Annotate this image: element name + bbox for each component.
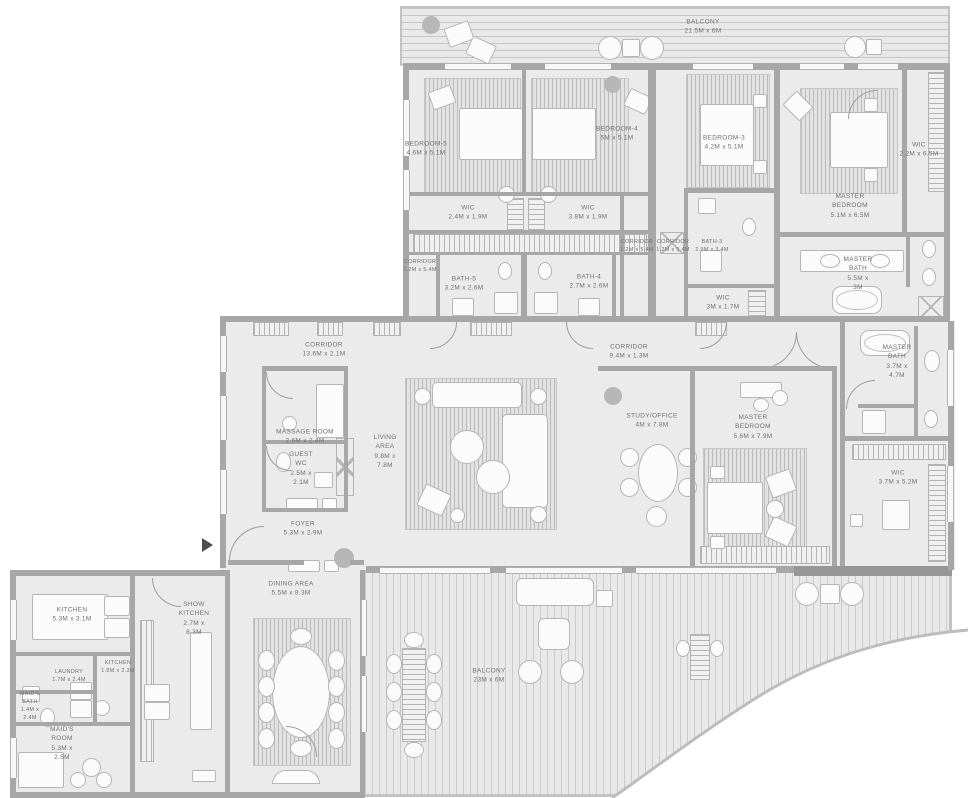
chair	[328, 728, 345, 749]
wic-island	[882, 500, 910, 530]
closet	[413, 234, 647, 254]
window	[800, 63, 844, 70]
room-label-show-kitchen: SHOW KITCHEN2.7M x 8.3M	[176, 600, 212, 638]
chair	[426, 710, 442, 730]
side-table	[766, 500, 784, 518]
room-label-bath-5: BATH-53.2M x 2.6M	[444, 275, 483, 294]
table	[866, 39, 882, 55]
sofa	[432, 382, 522, 408]
chair	[386, 654, 402, 674]
room-label-wic-bedroom-4: WIC3.8M x 1.9M	[568, 204, 607, 223]
table	[622, 39, 640, 57]
bidet	[922, 268, 936, 286]
closet	[928, 464, 946, 562]
wall	[598, 366, 837, 371]
room-label-foyer: FOYER5.3M x 2.9M	[283, 520, 322, 539]
room-label-bedroom-4: BEDROOM-45M x 5.1M	[596, 125, 638, 144]
wall	[612, 252, 616, 316]
chair	[795, 582, 819, 606]
window	[693, 63, 753, 70]
closet	[253, 322, 289, 336]
window	[636, 567, 776, 574]
room-label-kitchen: KITCHEN5.3M x 3.1M	[52, 606, 91, 625]
sink	[924, 350, 940, 372]
wall	[684, 188, 774, 193]
deck-edge	[948, 6, 950, 66]
room-label-master-bedroom-upper: MASTER BEDROOM5.1M x 6.5M	[826, 192, 874, 220]
planter	[604, 387, 622, 405]
chair	[328, 650, 345, 671]
room-label-wic-bedroom-5: WIC2.4M x 1.9M	[448, 204, 487, 223]
planter	[422, 16, 440, 34]
wall	[779, 232, 950, 237]
toilet	[924, 410, 938, 428]
counter	[192, 770, 216, 782]
room-label-bedroom-5: BEDROOM-54.6M x 5.1M	[405, 140, 447, 159]
chair	[258, 728, 275, 749]
chair	[386, 710, 402, 730]
chair	[646, 506, 667, 527]
room-label-dining-area: DINING AREA5.5M x 8.3M	[268, 580, 313, 599]
bed	[459, 108, 523, 160]
side-table	[450, 508, 465, 523]
wall	[93, 655, 97, 723]
shower	[494, 292, 518, 314]
window	[947, 350, 954, 406]
outdoor-table	[402, 648, 426, 742]
room-label-corridor-bed5: CORRIDOR1.2M x 5.4M	[403, 259, 437, 275]
window	[545, 63, 611, 70]
sink	[698, 198, 716, 214]
wall	[407, 192, 648, 196]
window	[858, 63, 898, 70]
wall	[832, 370, 837, 566]
chair	[426, 682, 442, 702]
room-label-massage-room: MASSAGE ROOM2.6M x 2.4M	[276, 428, 334, 447]
wall	[688, 284, 774, 288]
chair	[258, 676, 275, 697]
coffee-table	[450, 430, 484, 464]
wall	[130, 576, 135, 792]
chair	[258, 702, 275, 723]
chair	[710, 640, 724, 657]
sink	[314, 472, 333, 488]
deck-edge	[365, 794, 615, 797]
window	[403, 170, 410, 210]
wall	[225, 576, 230, 792]
sink	[452, 298, 474, 316]
room-label-living-area: LIVING AREA9.8M x 7.8M	[370, 433, 400, 471]
console	[272, 770, 320, 784]
room-label-balcony-top: BALCONY21.5M x 6M	[685, 18, 722, 37]
chair	[426, 654, 442, 674]
nightstand	[710, 466, 725, 479]
chair	[640, 36, 664, 60]
wall	[262, 366, 348, 371]
room-label-master-bath-main: MASTER BATH3.7M x 4.7M	[882, 343, 912, 381]
washer	[70, 700, 92, 718]
room-label-study-office: STUDY/OFFICE4M x 7.8M	[626, 412, 677, 431]
sofa	[516, 578, 594, 606]
appliance	[104, 618, 130, 638]
appliance	[144, 702, 170, 720]
chair	[290, 628, 312, 645]
chair	[844, 36, 866, 58]
dining-table	[272, 646, 330, 738]
appliance	[144, 684, 170, 702]
window	[10, 738, 17, 778]
wall	[262, 508, 348, 512]
deck-edge	[400, 6, 950, 8]
room-label-guest-wc: GUEST WC2.5M x 2.1M	[288, 450, 314, 488]
chair	[598, 36, 622, 60]
window	[10, 600, 17, 640]
closet	[507, 198, 524, 232]
wall	[16, 652, 132, 656]
window	[220, 336, 227, 372]
side-table	[530, 506, 547, 523]
closet	[317, 322, 343, 336]
room-label-corridor-bed4: CORRIDOR1.2M x 5.4M	[620, 239, 654, 255]
floor-plan: BALCONY21.5M x 6M BEDROOM-54.6M x 5.1M B…	[0, 0, 968, 798]
room-label-master-bedroom-main: MASTER BEDROOM5.6M x 7.9M	[729, 413, 777, 441]
room-label-kitchen-2: KITCHEN1.8M x 2.3M	[101, 660, 135, 676]
toilet	[922, 240, 936, 258]
chair	[96, 772, 112, 788]
bed	[830, 112, 888, 168]
chair	[404, 742, 424, 758]
nightstand	[753, 160, 767, 174]
sink	[820, 254, 840, 268]
room-label-balcony-main: BALCONY23M x 6M	[472, 667, 505, 686]
room-label-corridor-study: CORRIDOR9.4M x 1.3M	[609, 343, 648, 362]
shower	[862, 410, 886, 434]
shaft	[918, 296, 944, 318]
shower	[534, 292, 558, 314]
wall	[521, 252, 527, 316]
chair	[620, 448, 639, 467]
outdoor-table	[690, 634, 710, 680]
stool	[753, 398, 769, 412]
room-label-wic-bedroom-3: WIC3M x 1.7M	[706, 294, 739, 313]
wall	[794, 566, 952, 576]
window	[361, 600, 367, 656]
window	[220, 396, 227, 440]
toilet	[742, 218, 756, 236]
room-label-corridor-bed3: CORRIDOR1.2M x 5.4M	[656, 239, 690, 255]
window	[220, 470, 227, 514]
wall	[262, 366, 266, 512]
deck-edge	[400, 6, 402, 66]
show-kitchen-island	[190, 632, 212, 730]
room-label-bedroom-3: BEDROOM-34.2M x 5.1M	[703, 134, 745, 153]
room-label-master-bath-upper: MASTER BATH5.5M x 3M	[843, 255, 873, 293]
sink	[870, 254, 890, 268]
wall	[944, 63, 950, 321]
window	[506, 567, 622, 574]
nightstand	[710, 536, 725, 549]
wall	[350, 560, 364, 565]
room-label-bath-3: BATH-32.9M x 3.4M	[695, 239, 729, 255]
nightstand	[753, 94, 767, 108]
wall	[10, 792, 365, 798]
wall	[914, 326, 918, 436]
wall	[10, 570, 230, 576]
room-label-wic-master-main: WIC3.7M x 5.2M	[878, 469, 917, 488]
chair	[404, 632, 424, 648]
chair	[328, 702, 345, 723]
entry-arrow	[202, 538, 213, 552]
chair	[620, 478, 639, 497]
chair	[560, 660, 584, 684]
nightstand	[864, 168, 878, 182]
room-label-bath-4: BATH-42.7M x 2.6M	[569, 273, 608, 292]
wall	[522, 64, 526, 194]
toilet	[538, 262, 552, 280]
stool	[850, 514, 863, 527]
toilet	[498, 262, 512, 280]
closet	[748, 290, 766, 316]
coffee-table	[476, 460, 510, 494]
room-label-laundry: LAUNDRY1.7M x 2.4M	[52, 669, 86, 685]
closet	[373, 322, 401, 336]
window	[445, 63, 511, 70]
wall	[906, 237, 910, 287]
room-label-maids-room: MAID'S ROOM5.3M x 2.5M	[47, 725, 77, 763]
room-label-wic-master-upper: WIC2.2M x 6.5M	[899, 141, 938, 160]
wall	[858, 404, 914, 408]
wall	[648, 64, 656, 316]
chair	[70, 772, 86, 788]
wall	[840, 321, 845, 566]
closet	[528, 198, 545, 232]
coffee-table	[538, 618, 570, 650]
side-table	[414, 388, 431, 405]
chair	[518, 660, 542, 684]
chair	[840, 582, 864, 606]
closet	[852, 444, 946, 460]
sofa-l	[502, 414, 548, 508]
chair	[676, 640, 690, 657]
side-table	[530, 388, 547, 405]
window	[947, 466, 954, 522]
sink	[578, 298, 600, 316]
room-label-maids-bath: MAID'S BATH1.4M x 2.4M	[17, 691, 43, 723]
deck-edge	[949, 570, 952, 632]
wall	[228, 560, 304, 565]
side-table	[596, 590, 613, 607]
wall	[690, 370, 695, 566]
chair	[258, 650, 275, 671]
chair	[386, 682, 402, 702]
wall	[774, 64, 780, 316]
planter	[604, 76, 621, 93]
room-label-corridor-main: CORRIDOR13.6M x 2.1M	[303, 341, 346, 360]
wall	[840, 436, 954, 441]
wall	[407, 230, 648, 234]
bed	[532, 108, 596, 160]
closet	[470, 322, 512, 336]
bed	[707, 482, 763, 534]
balcony-main-deck	[365, 570, 952, 796]
window	[361, 676, 367, 732]
chair	[328, 676, 345, 697]
appliance	[104, 596, 130, 616]
grill	[820, 584, 840, 604]
window	[380, 567, 490, 574]
wall	[344, 366, 348, 512]
desk	[638, 444, 678, 502]
planter	[334, 548, 354, 568]
mirror	[772, 390, 788, 406]
